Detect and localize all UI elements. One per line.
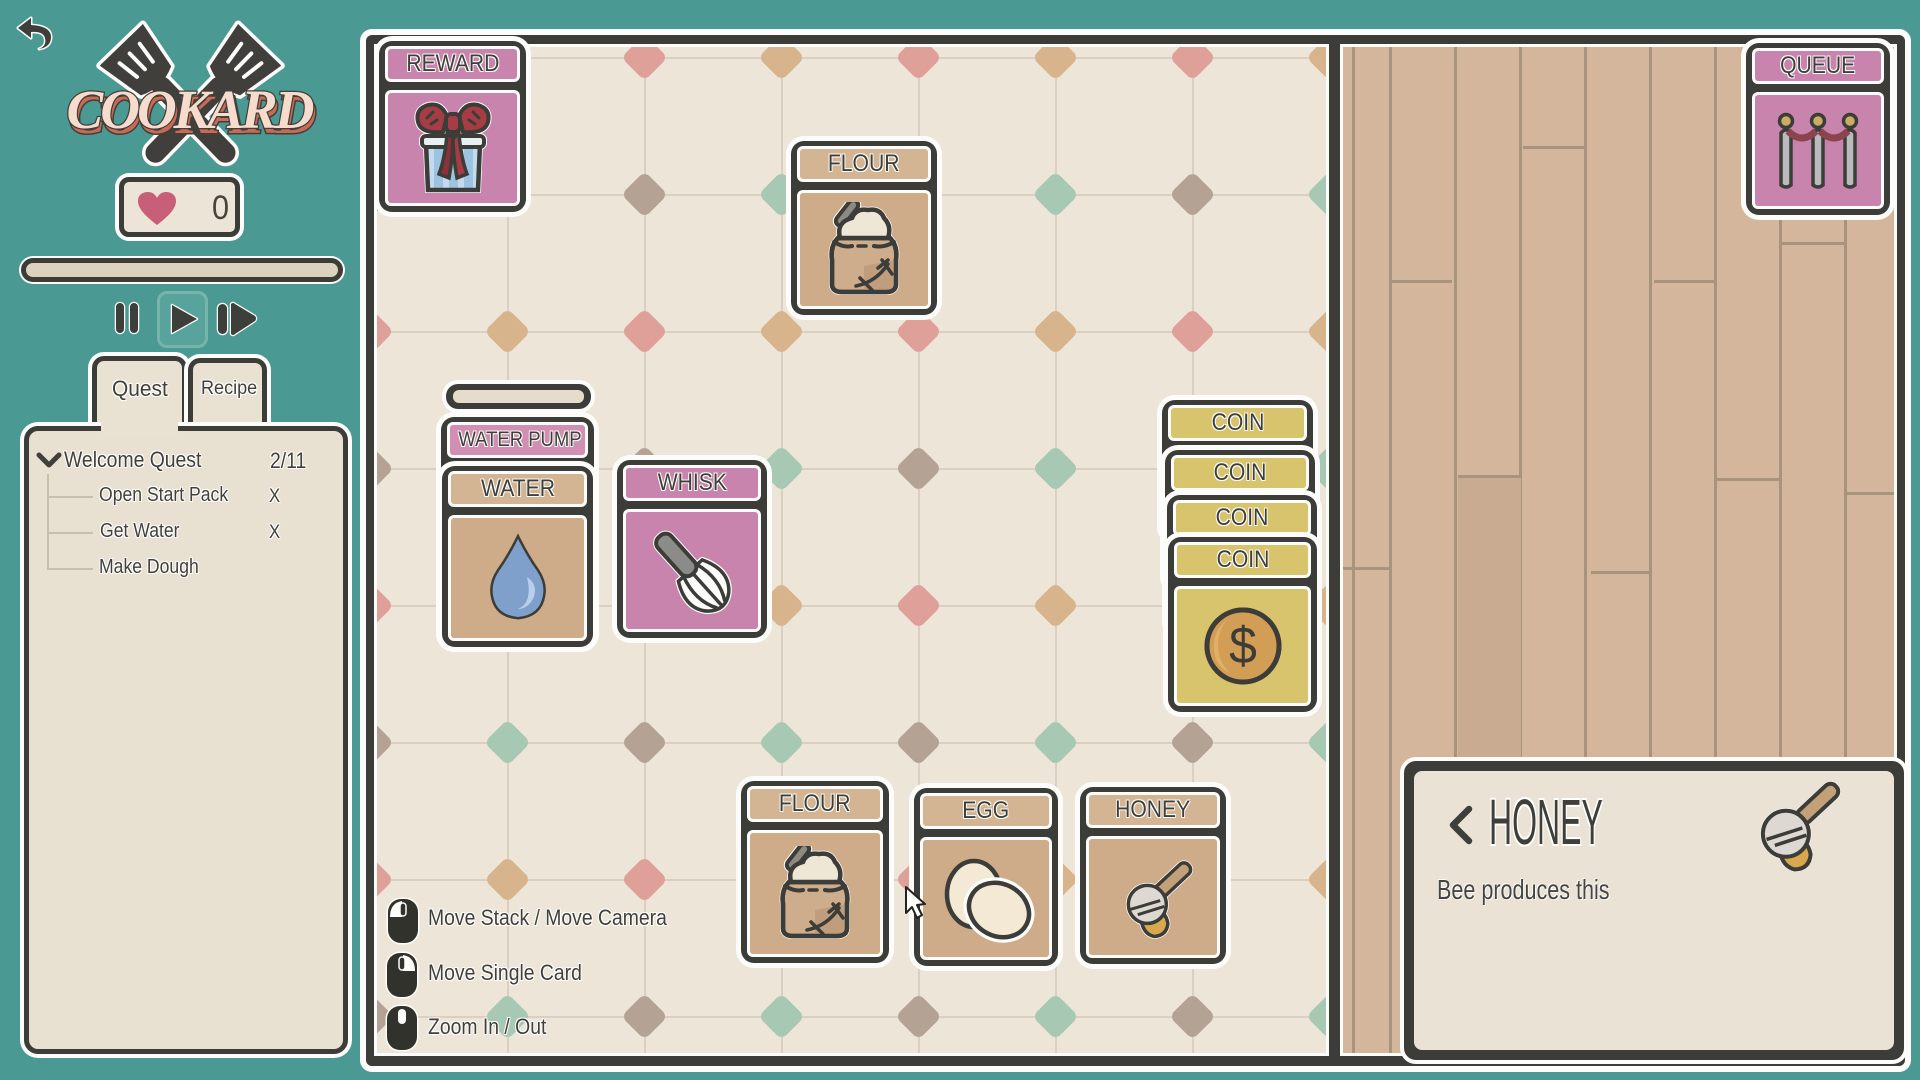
svg-text:COOKARD: COOKARD [67, 79, 314, 140]
svg-text:$: $ [1229, 616, 1257, 674]
